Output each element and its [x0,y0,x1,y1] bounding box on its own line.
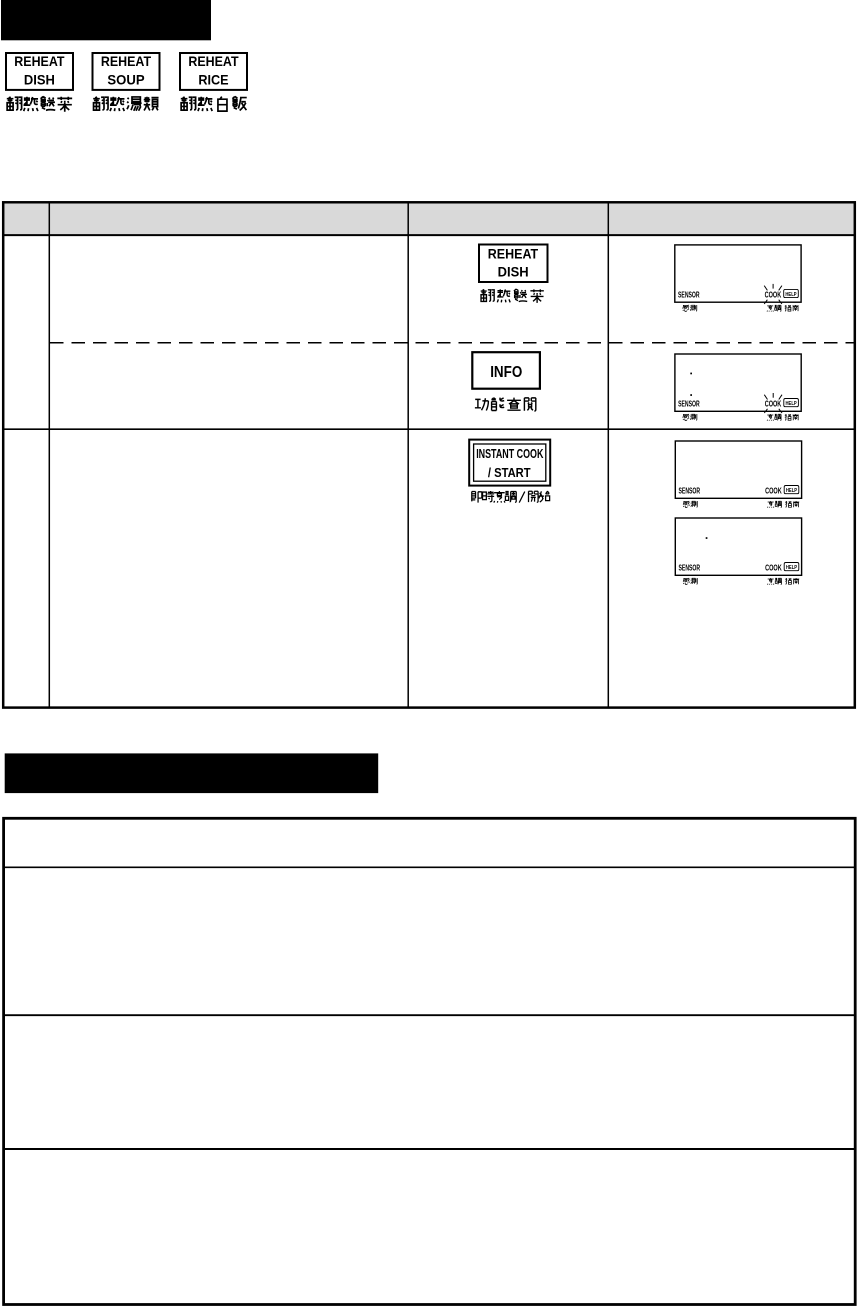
svg-text:REHEAT: REHEAT [14,53,65,69]
svg-text:SOUP: SOUP [107,72,144,88]
svg-text:INFO: INFO [490,364,522,381]
svg-text:/ START: / START [488,465,531,480]
svg-text:RICE: RICE [198,72,228,88]
svg-text:REHEAT: REHEAT [188,53,239,69]
svg-text:COOK: COOK [765,400,782,409]
svg-text:DISH: DISH [498,265,529,280]
svg-text:COOK: COOK [765,564,782,573]
svg-text:HELP: HELP [786,488,797,494]
svg-text:DISH: DISH [24,72,55,88]
svg-text:REHEAT: REHEAT [488,247,539,262]
svg-text:COOK: COOK [765,487,782,496]
svg-text:SENSOR: SENSOR [678,400,700,409]
svg-text:SENSOR: SENSOR [679,487,701,496]
svg-text:COOK: COOK [765,291,782,300]
svg-text:SENSOR: SENSOR [679,564,701,573]
svg-text:HELP: HELP [786,401,797,407]
svg-text:SENSOR: SENSOR [678,291,700,300]
svg-text:REHEAT: REHEAT [101,53,152,69]
svg-text:INSTANT COOK: INSTANT COOK [476,446,544,461]
svg-text:HELP: HELP [785,292,796,298]
svg-text:HELP: HELP [786,565,797,571]
